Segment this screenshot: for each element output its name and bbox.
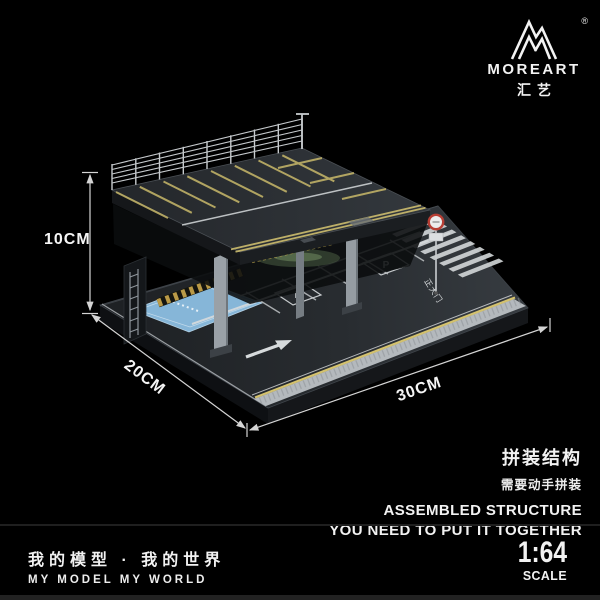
assembly-line1-en: ASSEMBLED STRUCTURE	[329, 502, 582, 519]
scale-label: SCALE	[510, 568, 567, 583]
assembly-title-cn: 拼装结构	[329, 444, 582, 470]
brand-block: ® MOREART 汇艺	[476, 14, 592, 100]
side-wall-panel	[124, 257, 146, 344]
scale-value: 1:64	[518, 538, 567, 568]
registered-mark: ®	[581, 16, 588, 26]
bottom-bar	[0, 595, 600, 600]
slogan-cn: 我的模型 · 我的世界	[28, 546, 225, 570]
sign-plate	[429, 233, 443, 241]
brand-slogan: 我的模型 · 我的世界 MY MODEL MY WORLD	[28, 546, 225, 586]
scale-badge: 1:64 SCALE	[507, 538, 567, 583]
product-image: P P 正大门	[0, 0, 600, 600]
support-pillar-rear	[296, 241, 304, 319]
divider-line	[0, 524, 600, 526]
sign-base	[434, 291, 438, 295]
slogan-en: MY MODEL MY WORLD	[28, 574, 225, 586]
assembly-subtitle-cn: 需要动手拼装	[329, 474, 582, 493]
brand-name-cn: 汇艺	[476, 80, 592, 100]
dimension-height-label: 10CM	[44, 231, 91, 249]
brand-name: MOREART	[476, 61, 592, 78]
mountain-m-logo-icon	[486, 14, 582, 60]
